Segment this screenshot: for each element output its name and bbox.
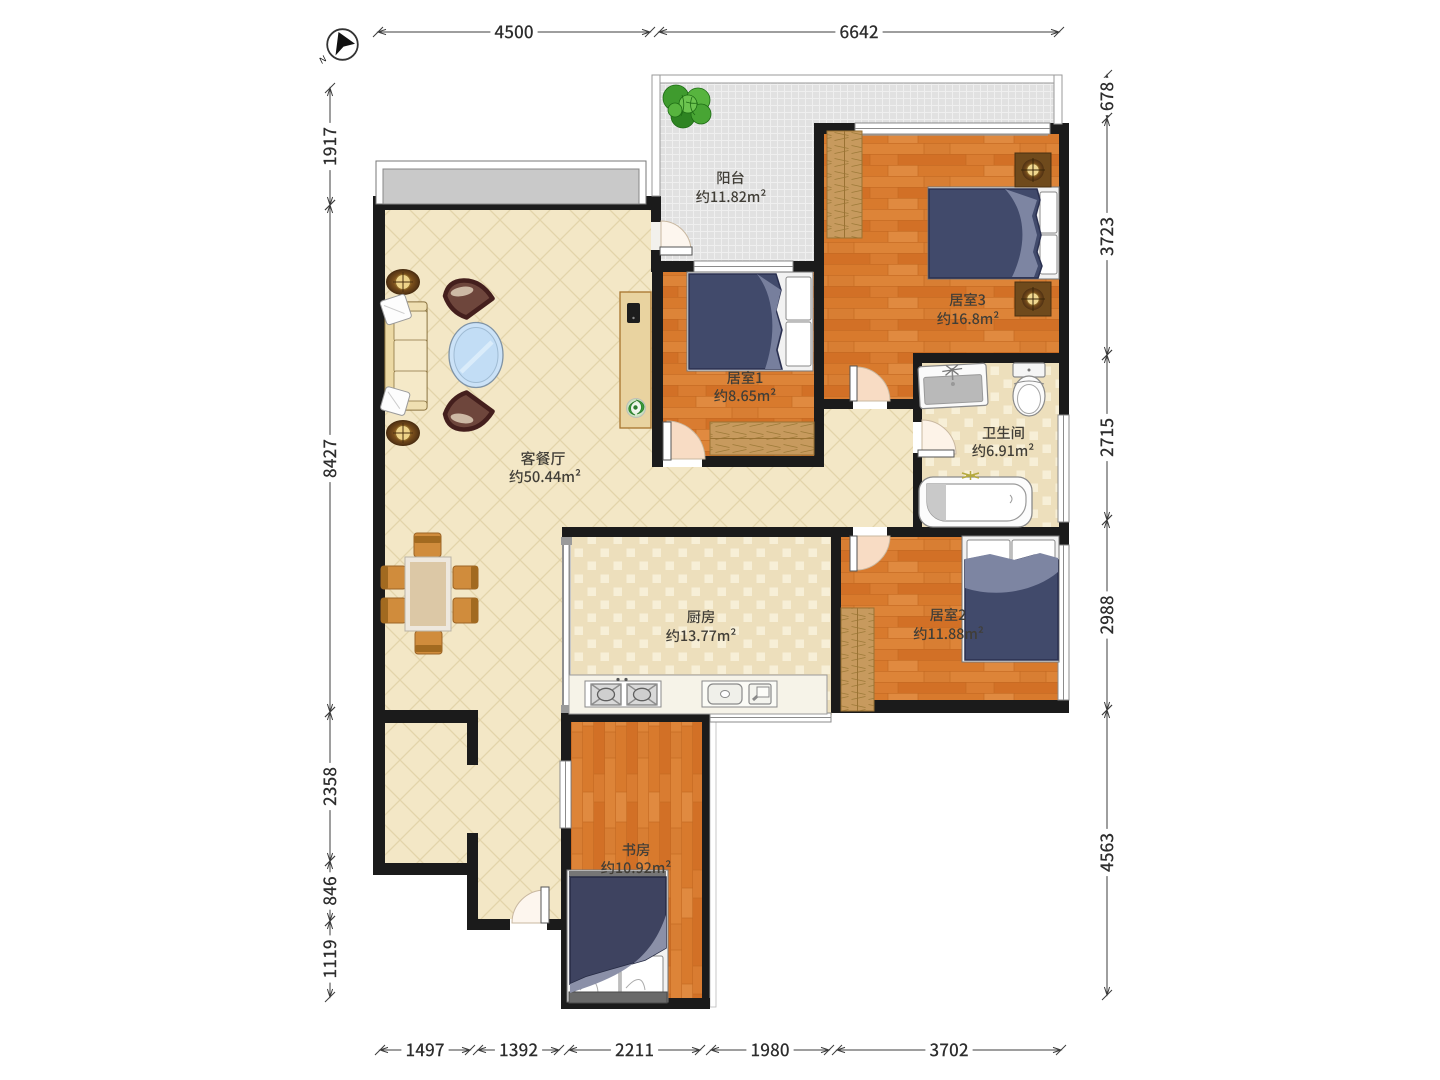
svg-text:N: N xyxy=(317,53,329,65)
